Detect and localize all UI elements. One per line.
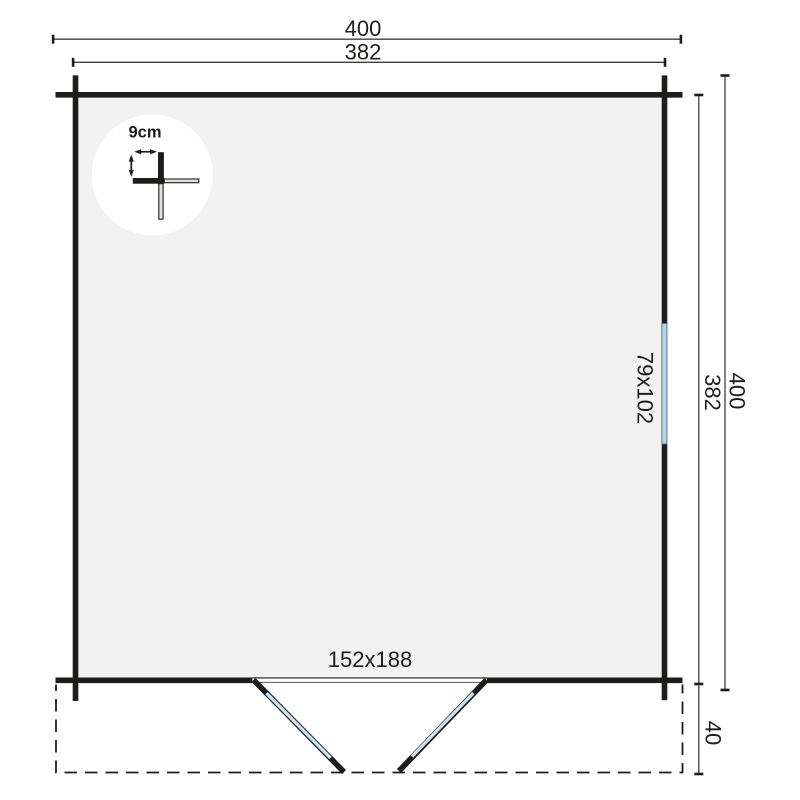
svg-text:382: 382 bbox=[345, 39, 382, 64]
svg-text:9cm: 9cm bbox=[128, 124, 161, 142]
svg-text:400: 400 bbox=[345, 16, 382, 41]
svg-text:79x102: 79x102 bbox=[633, 352, 658, 424]
svg-text:400: 400 bbox=[725, 373, 750, 410]
svg-text:382: 382 bbox=[700, 374, 725, 411]
svg-text:40: 40 bbox=[701, 721, 726, 745]
svg-text:152x188: 152x188 bbox=[328, 647, 412, 672]
